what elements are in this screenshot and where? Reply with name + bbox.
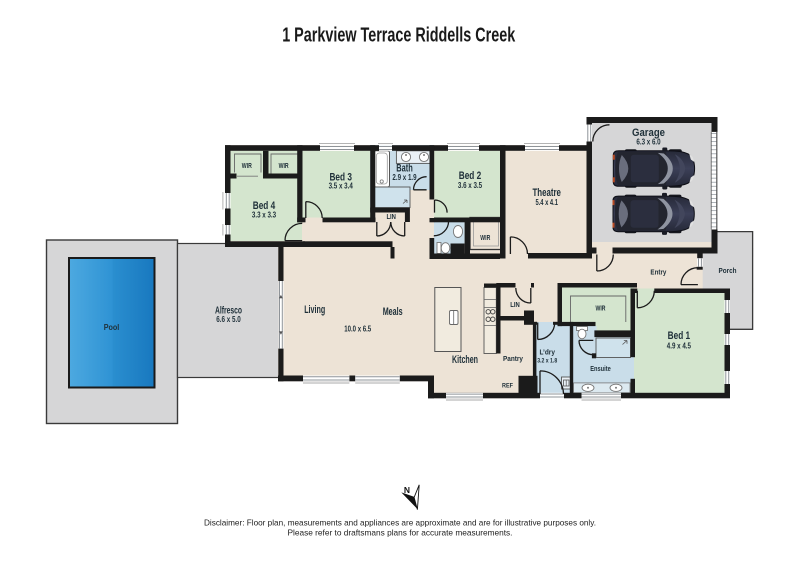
svg-text:WIR: WIR (596, 305, 606, 312)
svg-text:Entry: Entry (650, 268, 667, 277)
svg-text:5.4 x 4.1: 5.4 x 4.1 (535, 198, 558, 207)
svg-text:WIR: WIR (279, 163, 289, 170)
svg-text:Kitchen: Kitchen (452, 354, 478, 366)
svg-text:Please refer to draftsmans pla: Please refer to draftsmans plans for acc… (288, 527, 513, 537)
svg-text:Ensuite: Ensuite (590, 364, 611, 373)
svg-text:N: N (404, 485, 410, 495)
svg-text:Pool: Pool (104, 322, 120, 332)
svg-text:6.6 x 5.0: 6.6 x 5.0 (216, 315, 241, 324)
svg-text:3.5 x 3.4: 3.5 x 3.4 (329, 181, 354, 190)
svg-text:3.3 x 3.3: 3.3 x 3.3 (252, 210, 277, 219)
svg-text:3.2 x 1.8: 3.2 x 1.8 (537, 357, 557, 364)
svg-text:L’dry: L’dry (539, 347, 555, 356)
svg-text:LIN: LIN (510, 302, 520, 309)
svg-text:WIR: WIR (242, 163, 252, 170)
svg-text:WIR: WIR (480, 235, 490, 242)
svg-text:Disclaimer: Floor plan, measur: Disclaimer: Floor plan, measurements and… (204, 518, 596, 528)
svg-text:Bed 1: Bed 1 (668, 330, 691, 342)
svg-text:10.0 x 6.5: 10.0 x 6.5 (344, 325, 371, 334)
svg-text:6.3 x 6.0: 6.3 x 6.0 (636, 138, 661, 147)
svg-text:Porch: Porch (719, 266, 737, 275)
svg-text:3.6 x 3.5: 3.6 x 3.5 (458, 181, 483, 190)
svg-text:Pantry: Pantry (503, 354, 524, 363)
svg-text:LIN: LIN (386, 214, 396, 221)
svg-text:REF: REF (502, 382, 513, 389)
svg-text:Meals: Meals (383, 306, 403, 318)
svg-text:Living: Living (304, 304, 325, 316)
svg-text:2.9 x 1.9: 2.9 x 1.9 (392, 173, 417, 182)
svg-text:4.9 x 4.5: 4.9 x 4.5 (667, 342, 692, 351)
svg-text:1 Parkview Terrace Riddells Cr: 1 Parkview Terrace Riddells Creek (282, 23, 515, 46)
svg-text:Bed 2: Bed 2 (459, 170, 482, 182)
